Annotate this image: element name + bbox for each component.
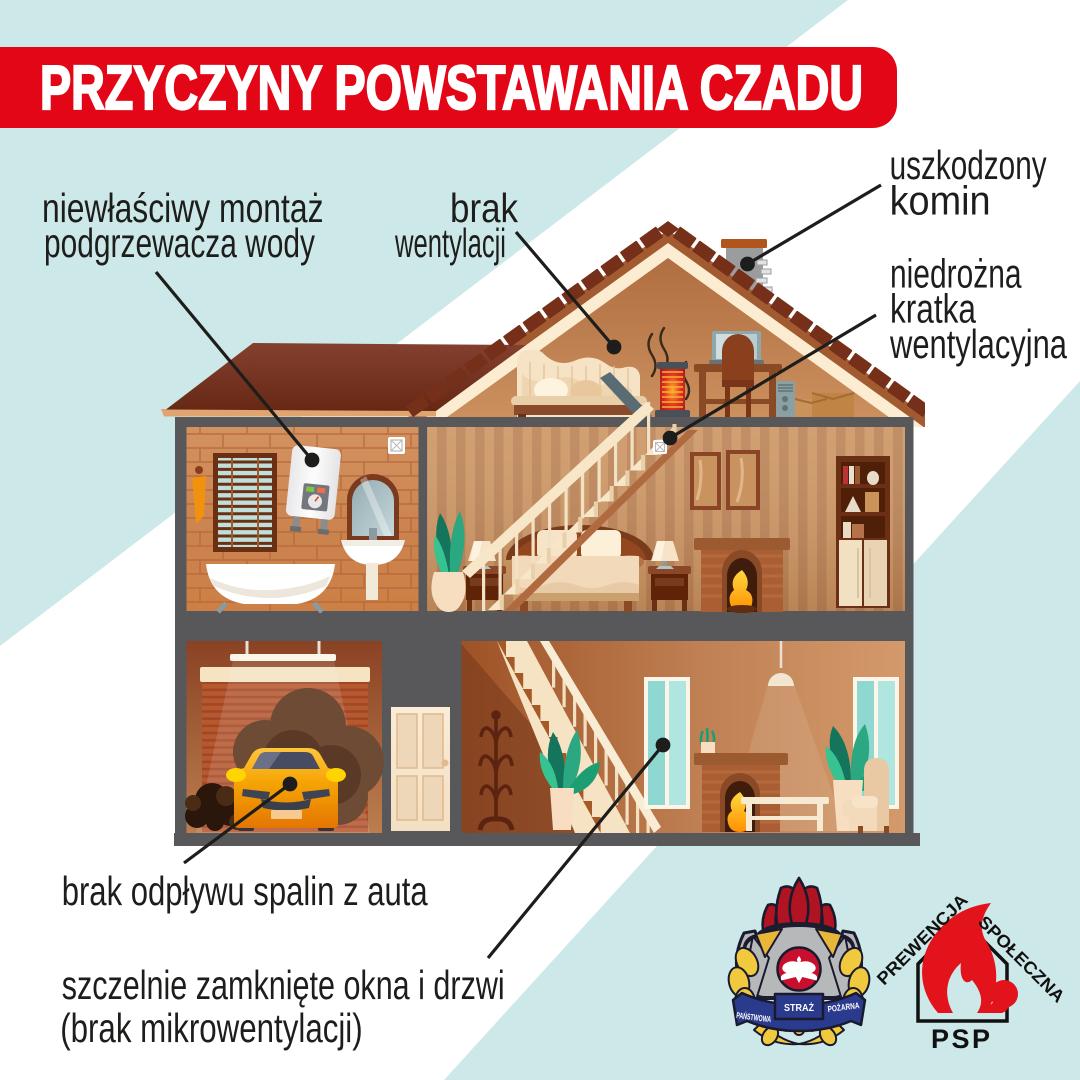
svg-text:PRZYCZYNY POWSTAWANIA CZADU: PRZYCZYNY POWSTAWANIA CZADU — [40, 54, 863, 123]
svg-text:PSP: PSP — [931, 1024, 993, 1054]
svg-text:(brak mikrowentylacji): (brak mikrowentylacji) — [60, 1005, 363, 1051]
svg-text:wentylacyjna: wentylacyjna — [889, 321, 1067, 367]
svg-text:wentylacji: wentylacji — [394, 220, 506, 266]
svg-text:szczelnie zamknięte okna i drz: szczelnie zamknięte okna i drzwi — [62, 962, 505, 1008]
svg-text:komin: komin — [890, 177, 991, 223]
svg-text:brak odpływu spalin z auta: brak odpływu spalin z auta — [62, 868, 428, 914]
svg-text:STRAŻ: STRAŻ — [784, 1001, 814, 1014]
svg-text:podgrzewacza wody: podgrzewacza wody — [44, 220, 315, 266]
